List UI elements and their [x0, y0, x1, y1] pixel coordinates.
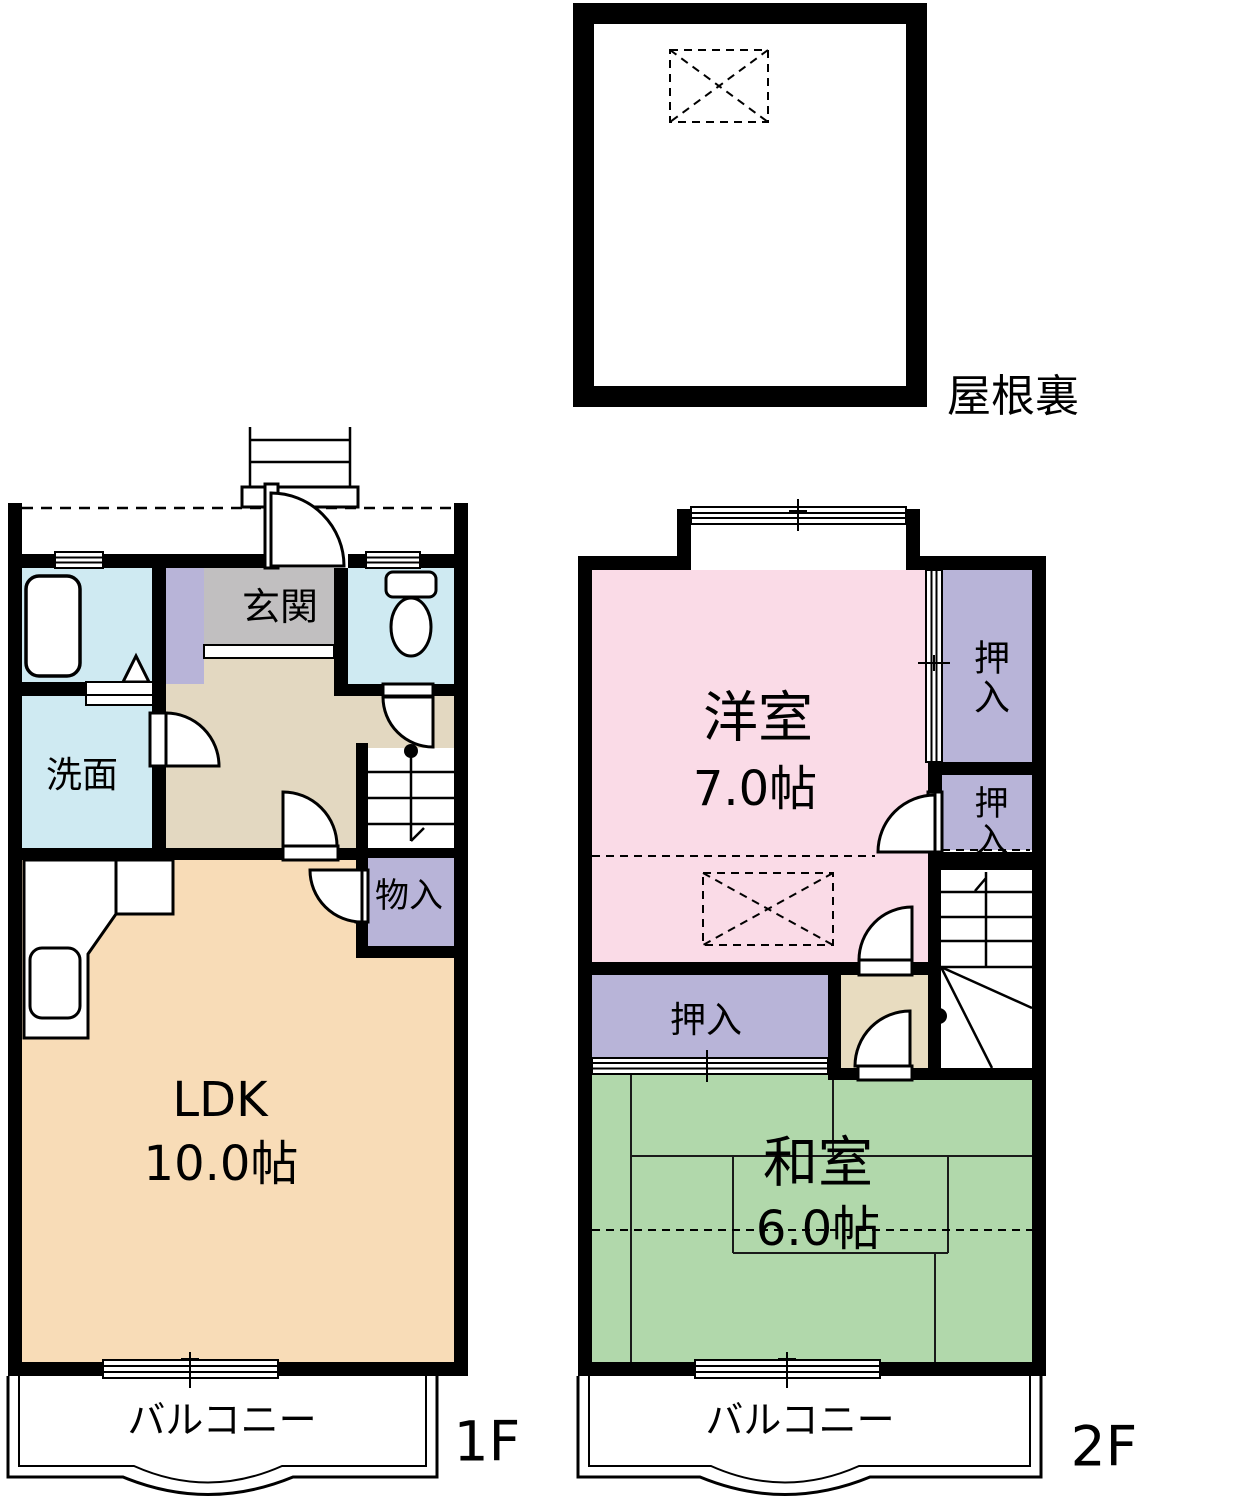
tatami-room-name-label: 和室	[763, 1136, 873, 1191]
stair-hinge-dot	[404, 744, 418, 758]
storage-label: 物入	[375, 879, 443, 913]
western-room-name-label: 洋室	[703, 691, 813, 746]
western-room-size-label: 7.0帖	[693, 765, 817, 813]
shoe-cabinet-area	[166, 568, 204, 684]
ldk-name-label: LDK	[172, 1076, 267, 1124]
attic-outline	[584, 14, 917, 397]
attic-plan	[584, 14, 917, 397]
entrance-steps-icon	[242, 427, 358, 507]
attic-label: 屋根裏	[947, 375, 1079, 419]
closet-lower-label: 押入	[971, 785, 1005, 859]
floor-plan-drawing	[0, 0, 1250, 1500]
bath-threshold2	[86, 695, 154, 705]
floor2-label: 2F	[1071, 1420, 1138, 1475]
toilet-window	[366, 552, 420, 568]
floor-plan-page: 屋根裏 玄関 洗面 物入 LDK 10.0帖 バルコニー 1F 洋室 7.0帖 …	[0, 0, 1250, 1500]
washroom-label: 洗面	[46, 758, 118, 794]
stairs-2f	[931, 872, 1032, 1068]
bath-threshold	[86, 682, 154, 695]
entrance-label: 玄関	[242, 588, 318, 626]
closet-upper-label: 押入	[970, 639, 1006, 717]
bath-window	[55, 552, 103, 568]
first-floor-plan	[8, 427, 468, 1495]
stair-hinge-dot-2f	[931, 1008, 947, 1024]
balcony-1f-label: バルコニー	[127, 1401, 316, 1439]
closet-middle-label: 押入	[670, 1003, 742, 1039]
ldk-size-label: 10.0帖	[144, 1140, 299, 1188]
tatami-room-size-label: 6.0帖	[756, 1205, 880, 1253]
bathtub-icon	[26, 576, 80, 676]
floor1-label: 1F	[454, 1415, 521, 1470]
toilet-icon	[386, 572, 436, 656]
bay-window	[691, 499, 906, 531]
entrance-step-edge	[204, 645, 334, 658]
balcony-2f-label: バルコニー	[705, 1401, 894, 1439]
